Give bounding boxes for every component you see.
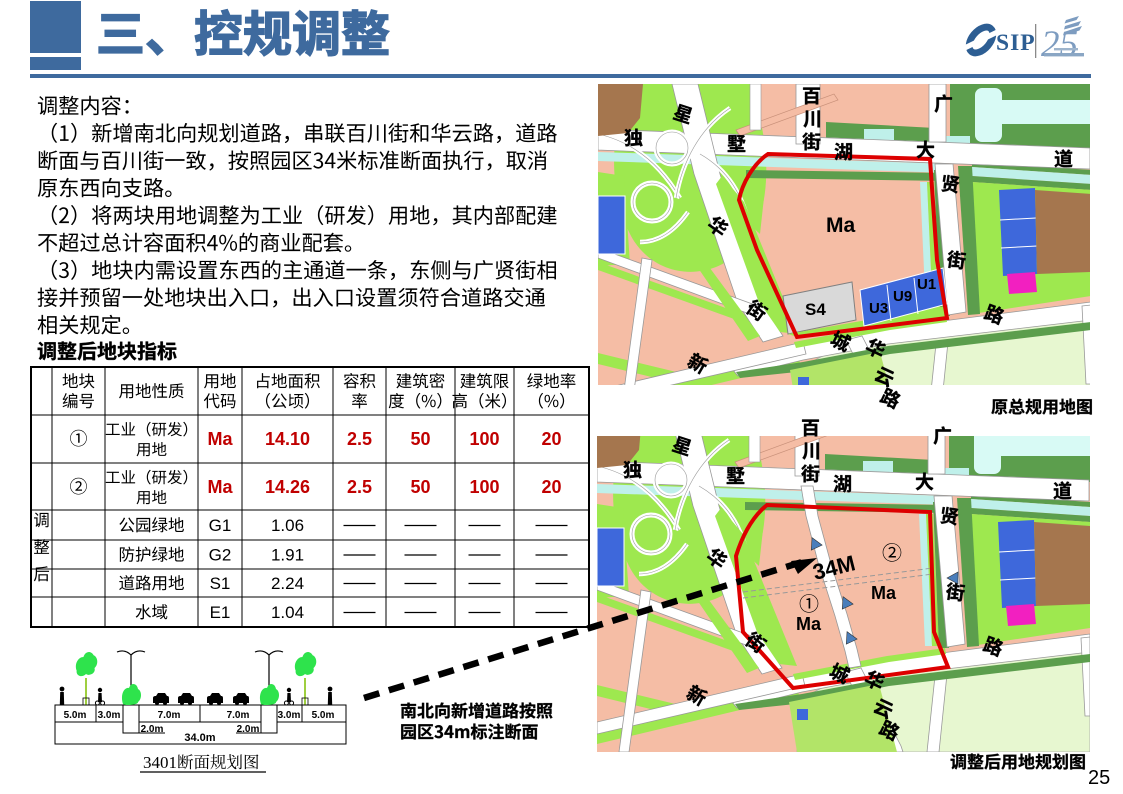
svg-text:100: 100 [469, 429, 499, 449]
svg-text:5.0m: 5.0m [64, 710, 87, 721]
svg-text:2.5: 2.5 [347, 429, 372, 449]
svg-text:Ma: Ma [826, 214, 855, 237]
svg-text:1.91: 1.91 [271, 546, 304, 565]
svg-text:Ma: Ma [871, 583, 897, 603]
svg-text:U9: U9 [893, 288, 912, 305]
svg-text:G1: G1 [209, 516, 232, 535]
svg-text:S1: S1 [210, 574, 231, 593]
svg-text:3401: 3401 [143, 753, 177, 772]
svg-text:G2: G2 [209, 546, 232, 565]
svg-text:7.0m: 7.0m [227, 710, 250, 721]
svg-text:20: 20 [541, 477, 561, 497]
svg-text:7.0m: 7.0m [158, 710, 181, 721]
svg-text:20: 20 [541, 429, 561, 449]
svg-text:E1: E1 [210, 603, 231, 622]
svg-text:1.06: 1.06 [271, 516, 304, 535]
svg-text:U1: U1 [917, 276, 936, 293]
svg-text:5.0m: 5.0m [312, 710, 335, 721]
svg-text:14.26: 14.26 [265, 477, 310, 497]
svg-text:U3: U3 [869, 300, 888, 317]
svg-text:3.0m: 3.0m [98, 710, 121, 721]
svg-text:34.0m: 34.0m [184, 732, 215, 744]
svg-text:1.04: 1.04 [271, 603, 304, 622]
svg-text:14.10: 14.10 [265, 429, 310, 449]
svg-text:50: 50 [410, 429, 430, 449]
svg-text:3.0m: 3.0m [278, 710, 301, 721]
svg-text:S4: S4 [805, 300, 826, 319]
svg-text:2.0m: 2.0m [237, 724, 260, 735]
svg-text:2.5: 2.5 [347, 477, 372, 497]
svg-text:50: 50 [410, 477, 430, 497]
svg-text:Ma: Ma [207, 477, 233, 497]
svg-text:Ma: Ma [207, 429, 233, 449]
svg-text:SIP: SIP [996, 30, 1036, 56]
svg-text:Ma: Ma [796, 614, 822, 634]
svg-text:2.24: 2.24 [271, 574, 304, 593]
svg-text:2.0m: 2.0m [141, 724, 164, 735]
svg-text:100: 100 [469, 477, 499, 497]
